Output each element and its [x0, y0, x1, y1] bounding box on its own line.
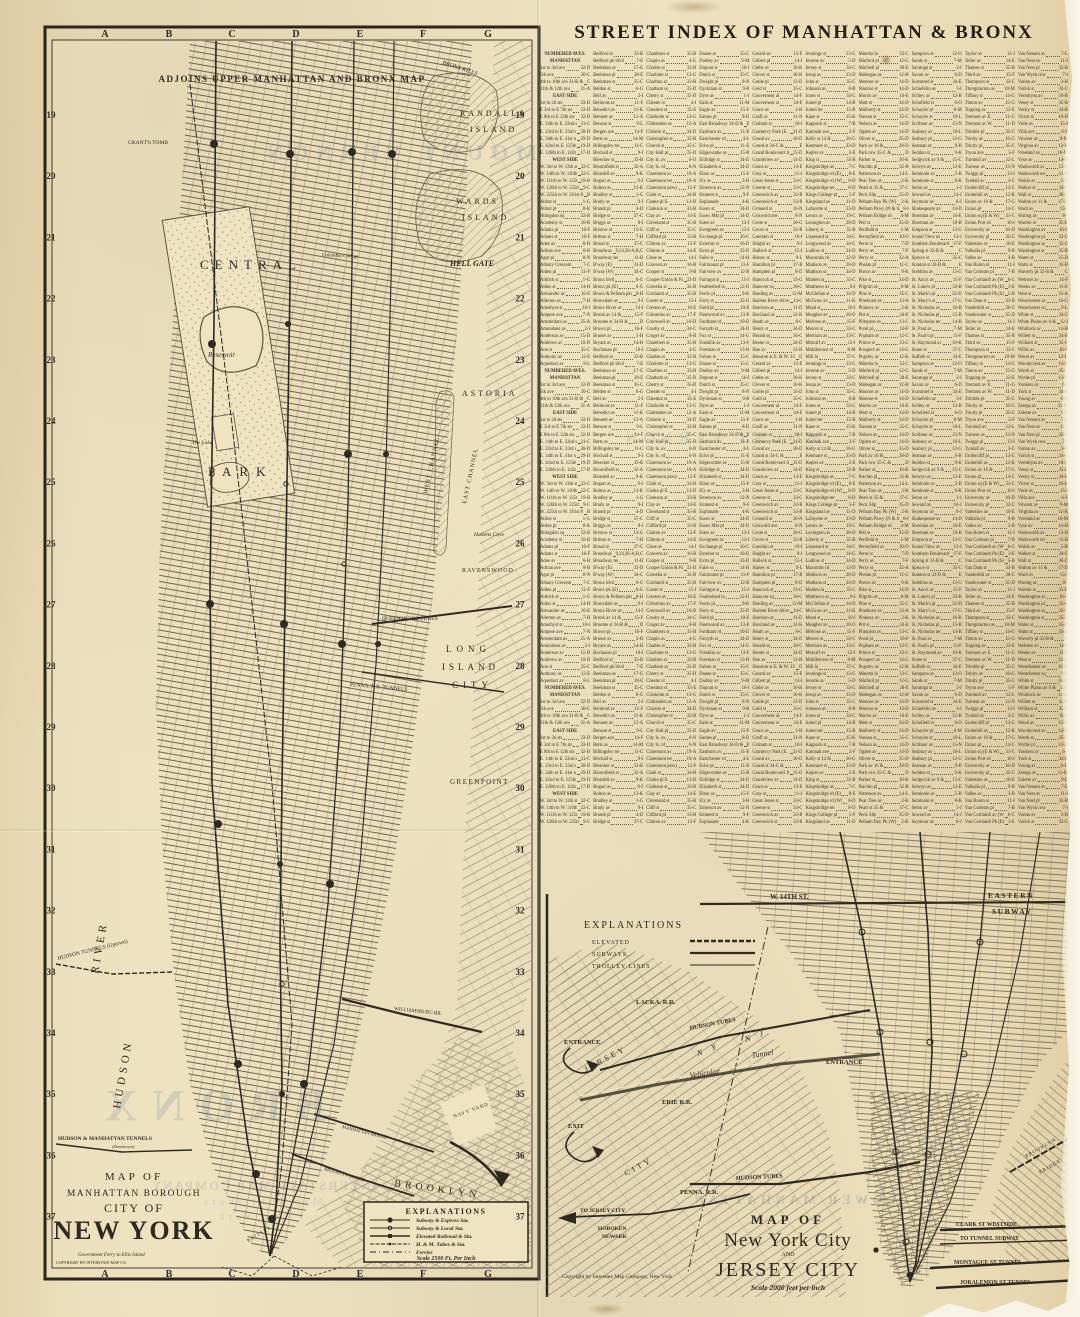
index-entry: Willis av16-F — [1018, 713, 1068, 720]
index-entry: Adee av6-H — [540, 558, 590, 565]
index-entry: Bryant av14-H — [593, 340, 643, 347]
index-entry: Van Buren st11-I — [965, 798, 1015, 805]
index-entry: E. 34th to E. 41st sts29-D — [540, 453, 590, 460]
index-entry: Clinton av13-F — [646, 241, 696, 248]
grid-label: 36 — [47, 1150, 57, 1160]
index-entry: Blondell av9-K — [593, 171, 643, 178]
svg-text:SUBWAYS: SUBWAYS — [592, 952, 627, 958]
index-entry: Morris av16-E — [859, 403, 909, 410]
index-entry: Agar pl8-N — [540, 255, 590, 262]
index-entry: 1st to 2d sts33-D — [540, 417, 590, 424]
index-entry: Abingdon sq32-B — [540, 530, 590, 537]
index-entry: W. 14th to W. 110th sts22-C — [540, 171, 590, 178]
index-entry: Albany Crescent7-C — [540, 580, 590, 587]
penna-label: PENNA. R.R. — [680, 1189, 719, 1196]
index-entry: Vyse av14-H — [1018, 157, 1068, 164]
index-entry: Charlton st33-B — [646, 657, 696, 664]
index-entry: Bridge st37-C — [593, 516, 643, 523]
index-entry: Exchange pl36-C — [699, 234, 749, 241]
index-entry: McGraw av11-K — [805, 298, 855, 305]
index-entry: Kingsland av11-D — [805, 819, 855, 826]
grid-label: 33 — [47, 967, 57, 977]
index-entry: 1st to 2d sts33-D — [540, 100, 590, 107]
index-entry: Hester st34-D — [752, 340, 802, 347]
index-entry: Kane st15-K — [805, 735, 855, 742]
wards-label-2: ISLAND — [462, 213, 509, 222]
index-entry: Pinkney av2-K — [859, 305, 909, 312]
index-entry: Stone st37-C — [912, 347, 962, 354]
index-entry: Gerard av15-E — [752, 671, 802, 678]
index-entry: Park row 35-C &D — [859, 460, 909, 467]
index-entry: Haviland av12-K — [752, 312, 802, 319]
index-entry: Anderson av15-D — [540, 650, 590, 657]
index-entry: Henry st34-D — [752, 636, 802, 643]
grid-label: 32 — [47, 906, 57, 916]
index-entry: Harlem River driveway14-C — [752, 608, 802, 615]
index-entry: Ampere ave7-N — [540, 629, 590, 636]
index-entry: Trinity pl35-C — [965, 678, 1015, 685]
index-entry: Kelly st 14 &16-G — [805, 756, 855, 763]
eastern-label: EASTERN — [988, 891, 1034, 900]
index-entry: Gilbert pl14-I — [752, 368, 802, 375]
index-entry: Union av 16 &17-G — [965, 199, 1015, 206]
index-column-5: Gerard av15-EGilbert pl14-IGlebe av10-KG… — [752, 51, 802, 827]
index-entry: Madison av28-D — [805, 572, 855, 579]
index-entry: Bridge st37-C — [593, 819, 643, 826]
index-entry: Wadsworth av13-B — [1018, 530, 1068, 537]
index-section-header: MANHATTAN — [540, 692, 590, 699]
index-entry: Sheridan av16-E — [912, 213, 962, 220]
index-entry: Brook av 14 &15-F — [593, 615, 643, 622]
index-entry: Bridge st37-C — [593, 213, 643, 220]
index-entry: Thompson st33-C — [965, 615, 1015, 622]
grid-label: F — [420, 1269, 426, 1280]
index-entry: Benedict av11-K — [593, 713, 643, 720]
index-entry: St. Mark's pl32-D — [912, 601, 962, 608]
index-entry: Bergen ave14-F — [593, 432, 643, 439]
index-entry: Amethyst st10-I — [540, 305, 590, 312]
index-entry: Fairview av12-B — [699, 580, 749, 587]
index-entry: Ely av3-H — [699, 488, 749, 495]
index-entry: Pilgrim av8-M — [859, 594, 909, 601]
index-entry: Vanderbilt av30-C — [965, 572, 1015, 579]
index-entry: Albany Crescent7-C — [540, 262, 590, 269]
joralemon-label: JORALEMON ST TUNNEL — [960, 1280, 1032, 1286]
index-entry: Seminole av5-B — [912, 791, 962, 798]
index-section-header: NUMBERED AVES. — [540, 368, 590, 375]
index-entry: Katonah ave2-F — [805, 439, 855, 446]
index-entry: Dwight pl8-N — [699, 79, 749, 86]
index-entry: Liberty st35-B — [805, 227, 855, 234]
index-entry: Great Jones st33-C — [752, 178, 802, 185]
index-entry: West st33-A — [1018, 291, 1068, 298]
index-entry: Greene st33-C — [752, 495, 802, 502]
index-entry: Van Corlears pl7-B — [965, 805, 1015, 812]
index-entry: Sampson av12-O — [912, 51, 962, 58]
astoria-label: ASTORIA — [462, 389, 518, 398]
index-entry: Chester st4-I — [646, 678, 696, 685]
index-entry: Chittenden av12-A — [646, 121, 696, 128]
index-entry: Scammel st34-E — [912, 699, 962, 706]
index-entry: East Broadway 34-D &E — [699, 432, 749, 439]
index-entry: Kepler av2-E — [805, 460, 855, 467]
index-entry: Seaman av9-B — [912, 763, 962, 770]
montague-label: MONTAGUE ST TUNNEL — [954, 1260, 1022, 1266]
index-entry: Cooper st9-B — [646, 558, 696, 565]
index-entry: Cliff st35-C — [646, 516, 696, 523]
index-entry: Franklin av13-F — [699, 650, 749, 657]
index-entry: Beekman av17-G — [593, 671, 643, 678]
index-entry: Lafayette st33-D — [805, 206, 855, 213]
index-entry: Walton av 11 &17-D — [1018, 565, 1068, 572]
index-entry: St. Paul av7-M — [912, 636, 962, 643]
index-entry: Elizabeth st34-D — [699, 474, 749, 481]
index-entry: Cherry st35-D — [646, 671, 696, 678]
index-entry: Pike st34-D — [859, 277, 909, 284]
index-entry: Minetta la33-C — [859, 671, 909, 678]
index-entry: W. 3rd to W. 13th sts32-C — [540, 164, 590, 171]
index-entry: Worth st35-C — [1018, 735, 1068, 742]
index-entry: Throgmorton av10-M — [965, 622, 1015, 629]
index-entry: Broadway9,24,30-A,B,C — [593, 248, 643, 255]
index-entry: Echo pl11-E — [699, 763, 749, 770]
index-entry: Undercliff pl13-C — [965, 453, 1015, 460]
index-entry: Saratoga st2-I — [912, 685, 962, 692]
index-entry: Fleetwood av13-E — [699, 312, 749, 319]
index-entry: Pelham Bridge rd4-M — [859, 523, 909, 530]
index-entry: Cleveland st35-B — [646, 798, 696, 805]
index-entry: Lispenard st34-C — [805, 234, 855, 241]
index-entry: Benson st9-L — [593, 728, 643, 735]
index-entry: Valhalla pl9-B — [965, 784, 1015, 791]
index-entry: Lispenard st34-C — [805, 544, 855, 551]
index-entry: Pinehurst av13-A — [859, 298, 909, 305]
index-section-header: NUMBERED AVES. — [540, 685, 590, 692]
index-entry: Tremont av E.11-G — [965, 650, 1015, 657]
index-entry: Stone st37-C — [912, 657, 962, 664]
index-entry: Beekman pl28-E — [593, 375, 643, 382]
index-entry: Tremont av W.11-D — [965, 121, 1015, 128]
index-entry: Park av 16 &28-D — [859, 143, 909, 150]
index-entry: Glebe av10-K — [752, 685, 802, 692]
index-entry: Mohegan av12-H — [859, 692, 909, 699]
index-entry: Emerson av12-N — [699, 805, 749, 812]
index-entry: Van Corlears pl7-B — [965, 269, 1015, 276]
grid-letters-top: ABCDEFG — [101, 29, 492, 40]
index-entry: Gouverneur al14-F — [752, 713, 802, 720]
index-entry: King st33-B — [805, 157, 855, 164]
index-entry: Stebbins av13-G — [912, 269, 962, 276]
index-entry: Greene st33-C — [752, 805, 802, 812]
index-entry: Hancock st13-G — [752, 587, 802, 594]
index-entry: Stebbins av13-G — [912, 580, 962, 587]
index-entry: Suffolk st34-E — [912, 354, 962, 361]
index-entry: East Broadway 34-D &E — [699, 742, 749, 749]
index-entry: Pitt st34-E — [859, 622, 909, 629]
index-entry: Fox st14-G — [699, 333, 749, 340]
index-entry: Field pl10-E — [699, 615, 749, 622]
index-entry: Kingsbridge av7-C — [805, 784, 855, 791]
index-entry: Saratoga st2-I — [912, 65, 962, 72]
ravenswood-label: RAVENSWOOD — [462, 568, 514, 574]
index-entry: Charlotte st13-G — [646, 650, 696, 657]
index-section-header: EAST SIDE — [540, 728, 590, 735]
index-entry: Grove st32-B — [752, 227, 802, 234]
index-entry: 5th ave30-C — [540, 389, 590, 396]
index-entry: St. Luke's pl33-B — [912, 594, 962, 601]
index-entry: Jersey st33-C — [805, 65, 855, 72]
svg-text:Government Ferry to Ellis Isla: Government Ferry to Ellis Island — [78, 1253, 145, 1258]
index-entry: Tiffany st14-G — [965, 93, 1015, 100]
index-entry: Peck Slip35-D — [859, 192, 909, 199]
index-entry: Westchester sq9-L — [1018, 305, 1068, 312]
index-entry: Bronx River av14-I — [593, 608, 643, 615]
index-entry: Schley av12-B — [912, 403, 962, 410]
index-entry: Cherry st35-D — [646, 382, 696, 389]
index-entry: Clarke pl E.13-D — [646, 777, 696, 784]
index-entry: Adams st16-F — [540, 234, 590, 241]
index-entry: Shakespeare av14-D — [912, 206, 962, 213]
svg-text:Subway & Local Sta.: Subway & Local Sta. — [416, 1226, 464, 1232]
index-entry: Griswold ave8-N — [752, 213, 802, 220]
index-entry: Fairview av12-B — [699, 269, 749, 276]
index-entry: Tinton av15-G — [965, 636, 1015, 643]
index-entry: Blondell av9-K — [593, 474, 643, 481]
index-entry: Phelan pl11-C — [859, 572, 909, 579]
index-entry: Pine st35-C — [859, 601, 909, 608]
index-entry: Goble pl13-D — [752, 389, 802, 396]
index-entry: Adams pl10-F — [540, 544, 590, 551]
index-entry: Gray st11-J — [752, 171, 802, 178]
index-entry: Schiefelin av3-I — [912, 86, 962, 93]
index-column-4: Duane st35-CDudley av9-MDupont st16-IDut… — [699, 51, 749, 827]
index-entry: Coster st15-I — [646, 298, 696, 305]
index-entry: Melrose av15-F — [805, 629, 855, 636]
index-entry: Vanderbilt av30-C — [965, 305, 1015, 312]
index-entry: Beekman st35-C — [593, 79, 643, 86]
index-entry: Featherbed la12-D — [699, 594, 749, 601]
index-entry: Whitlock av14-H — [1018, 692, 1068, 699]
index-entry: Bronx pk (E)6-G — [593, 284, 643, 291]
svg-text:MAP OF: MAP OF — [105, 1171, 163, 1183]
index-entry: Willis av16-F — [1018, 347, 1068, 354]
index-entry: Schuyler pl8-M — [912, 107, 962, 114]
index-entry: Guerlain st10-I — [752, 544, 802, 551]
index-entry: Dyckman st9-B — [699, 86, 749, 93]
index-entry: Westchester av16-G — [1018, 298, 1068, 305]
index-entry: Victor st10-H — [1018, 114, 1068, 121]
index-entry: Cleveland st35-B — [646, 220, 696, 227]
index-entry: Benson st9-L — [593, 424, 643, 431]
index-entry: Oliver st35-D — [859, 756, 909, 763]
index-entry: Union av 16 &17-G — [965, 735, 1015, 742]
index-entry: Valhalla pl9-B — [965, 248, 1015, 255]
index-entry: Echo pl11-E — [699, 143, 749, 150]
index-entry: Claremont pkwy12-F — [646, 185, 696, 192]
index-entry: Hanover sq36-C — [752, 594, 802, 601]
index-entry: Thames st35-B — [965, 601, 1015, 608]
index-entry: Valentine av10-E — [965, 509, 1015, 516]
index-entry: Kingsland av11-D — [805, 199, 855, 206]
index-entry: Cromwell av16-D — [646, 319, 696, 326]
index-column-1: NUMBERED AVES.MANHATTAN1st to 3rd avs32-… — [540, 51, 590, 827]
index-entry: Brook av 14 &15-F — [593, 312, 643, 319]
index-entry: Pugsley av12-K — [859, 354, 909, 361]
index-entry: Jersey st33-C — [805, 685, 855, 692]
index-entry: Monroe av14-D — [859, 699, 909, 706]
index-entry: Broad st37-C — [593, 241, 643, 248]
index-entry: Eames pl8-D — [699, 735, 749, 742]
index-entry: Freeman st13-H — [699, 657, 749, 664]
index-entry: Clinton st34-E — [646, 537, 696, 544]
index-entry: Aldrich st1-G — [540, 594, 590, 601]
index-entry: Turneur av13-N — [965, 164, 1015, 171]
index-entry: Gold st35-C — [752, 706, 802, 713]
index-entry: York st34-B — [1018, 389, 1068, 396]
index-entry: Middletown rd8-M — [805, 657, 855, 664]
svg-text:NEW YORK: NEW YORK — [53, 1216, 214, 1245]
index-entry: Seymour av6-J — [912, 509, 962, 516]
index-entry: Aldrich st1-G — [540, 277, 590, 284]
index-columns: NUMBERED AVES.MANHATTAN1st to 3rd avs32-… — [540, 51, 1068, 827]
index-entry: Plimpton av13-C — [859, 319, 909, 326]
index-entry: Dutch st35-C — [699, 382, 749, 389]
index-entry: Scammel st34-E — [912, 389, 962, 396]
index-entry: Wadsworth ter11-B — [1018, 171, 1068, 178]
index-entry: Grant av13-E — [752, 784, 802, 791]
index-entry: E 3rd to E 7th sts33-D — [540, 742, 590, 749]
index-entry: Broadway9,24,30-A,B,C — [593, 551, 643, 558]
hell-gate-label: HELL GATE — [449, 259, 494, 268]
grid-label: 24 — [47, 416, 57, 426]
index-entry: Bronx River av14-I — [593, 305, 643, 312]
index-entry: Christopher st32-B — [646, 713, 696, 720]
grid-label: E — [357, 1269, 364, 1280]
index-entry: Warren st35-B — [1018, 587, 1068, 594]
index-entry: E. 42nd to E. 125th sts19-D — [540, 460, 590, 467]
index-entry: Clinton av13-F — [646, 530, 696, 537]
index-entry: Johnson av8-B — [805, 86, 855, 93]
index-entry: Grinnell st16-N — [752, 206, 802, 213]
index-entry: Varian av3-H — [1018, 79, 1068, 86]
index-entry: Bennett av12-A — [593, 720, 643, 727]
index-entry: Throgmorton av10-M — [965, 354, 1015, 361]
index-entry: Lenox av19-C — [805, 523, 855, 530]
index-entry: Sands st7-M — [912, 678, 962, 685]
index-entry: Maiden la35-C — [805, 277, 855, 284]
index-entry: Southern Boulevard 10 &17-F — [912, 241, 962, 248]
index-entry: William st35-C — [1018, 340, 1068, 347]
index-entry: Adams pl10-F — [540, 227, 590, 234]
index-entry: Turneur av13-N — [965, 432, 1015, 439]
index-entry: Phelan pl11-C — [859, 262, 909, 269]
grid-label: 30 — [516, 783, 526, 793]
index-entry: Charlton st33-B — [646, 368, 696, 375]
index-entry: Lafayette st33-D — [805, 516, 855, 523]
index-entry: E. 126th to E. 142nd sts17-D — [540, 150, 590, 157]
index-entry: Perry st32-A — [859, 565, 909, 572]
index-entry: Seabury pl12-G — [912, 446, 962, 453]
index-entry: Monroe st34-D — [859, 706, 909, 713]
index-entry: Bruner av3-H — [593, 333, 643, 340]
grid-label: 23 — [47, 355, 57, 365]
index-entry: Franklin av13-F — [699, 340, 749, 347]
index-entry: St. Nicholas ter14-B — [912, 629, 962, 636]
index-entry: Charles st32-B — [646, 643, 696, 650]
index-entry: Chatham sq35-D — [646, 375, 696, 382]
index-entry: Seton av1-J — [912, 185, 962, 192]
index-entry: Cornelia st32-B — [646, 284, 696, 291]
index-entry: Wythe pl13-D — [1018, 375, 1068, 382]
svg-text:New York City: New York City — [724, 1230, 852, 1251]
index-entry: Stanton st 33-D &E — [912, 262, 962, 269]
lacka-label: LACKA. R.R. — [636, 999, 676, 1006]
index-entry: Kelly st 14 &16-G — [805, 136, 855, 143]
index-entry: East Broadway 34-D &E — [699, 121, 749, 128]
index-entry: University pl32-C — [965, 770, 1015, 777]
index-entry: Underhill av12-K — [965, 728, 1015, 735]
index-entry: Undercliff pl13-C — [965, 185, 1015, 192]
index-entry: Simpson st13-G — [912, 227, 962, 234]
index-entry: City Is. rd6-N — [646, 742, 696, 749]
index-entry: Amsterdam av25-A — [540, 319, 590, 326]
index-entry: Perry st32-A — [859, 255, 909, 262]
index-entry: Ely av3-H — [699, 178, 749, 185]
index-entry: City Hall pl35-D — [646, 439, 696, 446]
index-entry: Clark st34-B — [646, 192, 696, 199]
index-entry: Extra pl33-D — [699, 558, 749, 565]
halletts-label: Halletts Cove — [473, 532, 505, 538]
index-entry: Jesup av13-D — [805, 382, 855, 389]
index-entry: Pear Tree av2-K — [859, 488, 909, 495]
grid-label: D — [292, 29, 299, 40]
index-entry: Seminole st8-K — [912, 798, 962, 805]
index-entry: Sands st7-M — [912, 58, 962, 65]
index-entry: Cortlandt st35-B — [646, 291, 696, 298]
index-entry: W. 126th to W. 225th sts9-C — [540, 819, 590, 826]
index-entry: Amundsen av2-I — [540, 326, 590, 333]
index-entry: Herald sq30-C — [752, 643, 802, 650]
index-entry: Trinity av16-G — [965, 136, 1015, 143]
index-entry: Perry av7-F — [859, 248, 909, 255]
index-entry: Chestnut st35-E — [646, 685, 696, 692]
index-entry: Amsterdam av25-A — [540, 636, 590, 643]
index-entry: City Is. av6-O — [646, 157, 696, 164]
index-entry: Spring st 33-B &C — [912, 248, 962, 255]
index-entry: Tiffany st14-G — [965, 361, 1015, 368]
index-entry: Van Wyck row7-I — [1018, 72, 1068, 79]
index-entry: Betts av14-M — [593, 742, 643, 749]
index-entry: Scribner av15-N — [912, 121, 962, 128]
grid-label: 28 — [47, 661, 57, 671]
index-entry: Van Corlears pl7-B — [965, 537, 1015, 544]
index-entry: Grandview av14-D — [752, 157, 802, 164]
index-entry: Bedford pk blvd7-E — [593, 664, 643, 671]
index-entry: City Is. rd6-N — [646, 453, 696, 460]
index-entry: Valentine av10-E — [965, 777, 1015, 784]
index-entry: Mercer st33-C — [805, 326, 855, 333]
map-sheet: { "street_index": { "title": "STREET IND… — [0, 0, 1080, 1317]
index-entry: Zerega av11-M — [1018, 403, 1068, 410]
index-entry: St. Mary's st17-G — [912, 298, 962, 305]
index-entry: Eldridge st34-D — [699, 777, 749, 784]
index-entry: Pinehurst av13-A — [859, 608, 909, 615]
to-jersey-label: TO JERSEY CITY — [580, 1208, 625, 1214]
index-column-9: Taylor av11-JTeller av14-EThames st35-BT… — [965, 51, 1015, 827]
to-tunnel-label: TO TUNNEL SUBWAY — [960, 1236, 1020, 1242]
index-entry: Bronxdale av9-I — [593, 298, 643, 305]
index-entry: Van Cortlandt av (W)6-C — [965, 544, 1015, 551]
